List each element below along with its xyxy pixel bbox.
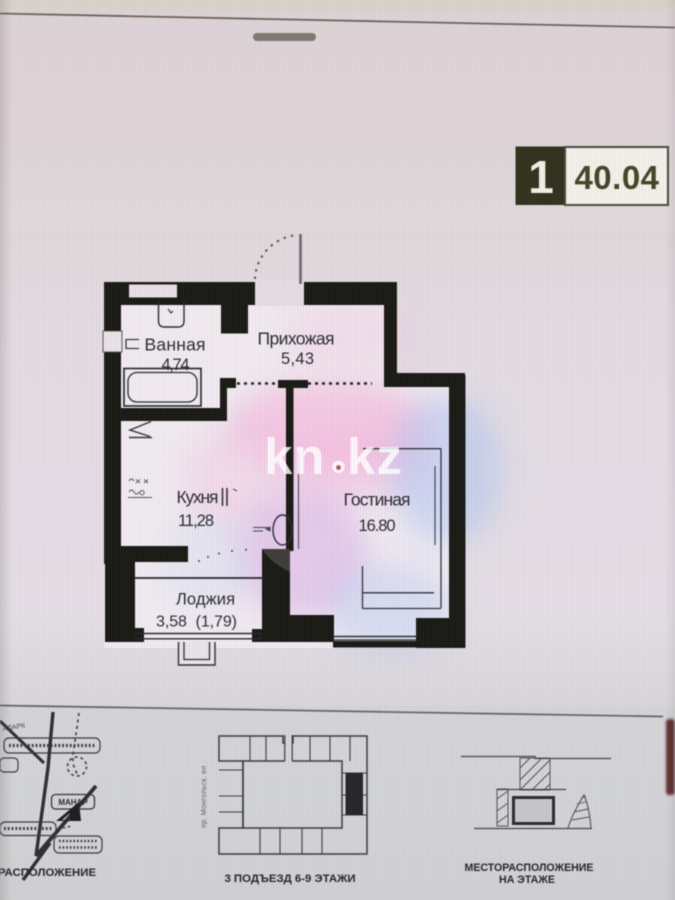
svg-text:kz: kz	[347, 428, 403, 485]
svg-text:kn: kn	[264, 428, 326, 485]
